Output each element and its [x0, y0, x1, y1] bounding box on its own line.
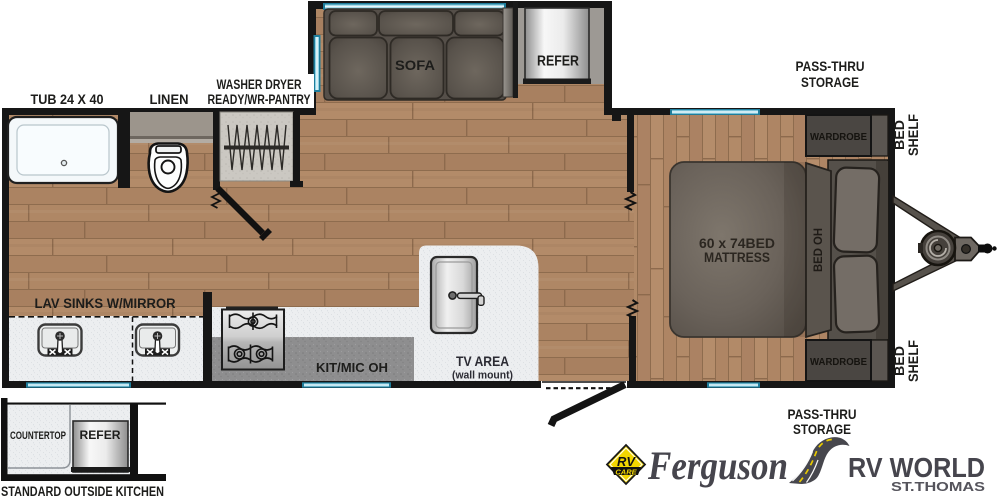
svg-text:WARDROBE: WARDROBE [810, 131, 867, 143]
svg-text:Ferguson: Ferguson [647, 443, 788, 488]
svg-text:SHELF: SHELF [905, 114, 921, 156]
svg-text:STANDARD OUTSIDE KITCHEN: STANDARD OUTSIDE KITCHEN [1, 484, 164, 499]
svg-text:MATTRESS: MATTRESS [704, 250, 770, 265]
svg-text:WASHER DRYER: WASHER DRYER [217, 77, 302, 92]
svg-text:WARDROBE: WARDROBE [810, 356, 867, 368]
svg-text:SOFA: SOFA [395, 57, 435, 73]
svg-text:LAV SINKS W/MIRROR: LAV SINKS W/MIRROR [35, 296, 176, 311]
svg-text:REFER: REFER [537, 53, 579, 70]
svg-text:ST.THOMAS: ST.THOMAS [891, 480, 985, 494]
svg-text:KIT/MIC OH: KIT/MIC OH [316, 360, 388, 375]
svg-text:LINEN: LINEN [150, 92, 189, 107]
svg-text:RV WORLD: RV WORLD [848, 452, 985, 483]
svg-text:BED OH: BED OH [813, 228, 825, 272]
svg-text:(wall mount): (wall mount) [452, 370, 513, 382]
svg-text:60 x 74BED: 60 x 74BED [699, 236, 775, 251]
svg-text:COUNTERTOP: COUNTERTOP [10, 430, 66, 442]
svg-text:TV AREA: TV AREA [456, 353, 509, 369]
svg-text:STORAGE: STORAGE [801, 74, 859, 90]
svg-text:TUB 24 X 40: TUB 24 X 40 [31, 92, 104, 107]
svg-text:CARE: CARE [615, 468, 637, 477]
svg-text:REFER: REFER [80, 428, 121, 442]
svg-text:PASS-THRU: PASS-THRU [788, 406, 857, 422]
svg-text:READY/WR-PANTRY: READY/WR-PANTRY [208, 92, 311, 107]
svg-text:PASS-THRU: PASS-THRU [796, 58, 865, 74]
svg-text:SHELF: SHELF [905, 340, 921, 382]
svg-text:STORAGE: STORAGE [793, 421, 851, 437]
